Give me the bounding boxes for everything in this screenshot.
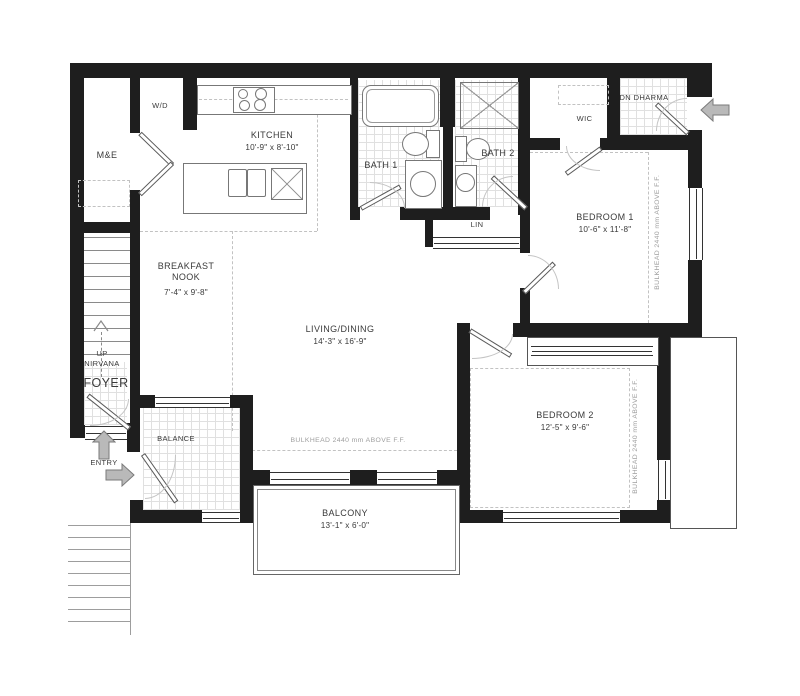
room-label-nook: BREAKFAST NOOK (145, 261, 227, 284)
terrace-bottom-window (202, 512, 240, 523)
bedroom2-bulkhead-outline (470, 368, 630, 508)
wall (443, 127, 453, 207)
room-label-bath1: BATH 1 (356, 160, 406, 171)
bedroom2-closet-slider (531, 346, 653, 356)
floor-plan: M&E W/D KITCHEN 10'-9" x 8'-10" BATH 1 B… (0, 0, 800, 696)
stair-up-chevron-icon (93, 320, 109, 332)
room-label-wic: WIC (562, 114, 607, 123)
balcony-sliding-door (270, 472, 350, 485)
burner-icon (239, 100, 250, 111)
bedroom1-window (689, 188, 703, 260)
bath1-sink (410, 171, 436, 197)
bulkhead-note-living: BULKHEAD 2440 mm ABOVE F.F. (288, 437, 408, 445)
burner-icon (254, 99, 266, 111)
entry-label: ENTRY (84, 458, 124, 467)
wall (70, 63, 712, 78)
wall (133, 395, 155, 408)
bath2-sink (456, 173, 475, 192)
wall (620, 510, 670, 523)
door-swing-arc (528, 255, 559, 289)
interior-stair-treads (84, 237, 130, 355)
room-label-bedroom1: BEDROOM 1 (555, 212, 655, 223)
burner-icon (238, 89, 248, 99)
bedroom2-window (503, 512, 620, 523)
wall (440, 78, 455, 127)
adjacent-terrace-outline (670, 337, 737, 529)
wall (350, 470, 377, 485)
wall (425, 215, 433, 247)
sink-bowl (247, 169, 266, 197)
wic-shelf (558, 85, 609, 105)
bulkhead-note-bedroom1: BULKHEAD 2440 mm ABOVE F.F. (654, 167, 662, 297)
wall (130, 510, 202, 523)
room-dims-balcony: 13'-1" x 6'-0" (295, 521, 395, 531)
living-bulkhead-line (242, 450, 457, 451)
wall (513, 323, 657, 337)
room-dims-bedroom2: 12'-5" x 9'-6" (510, 423, 620, 433)
wall (70, 425, 85, 438)
sink-bowl (228, 169, 247, 197)
room-dims-living: 14'-3" x 16'-9" (290, 337, 390, 347)
wall (687, 63, 712, 97)
exterior-stair-treads (68, 525, 130, 625)
wall (657, 323, 702, 337)
wall (183, 78, 197, 130)
room-dims-bedroom1: 10'-6" x 11'-8" (555, 225, 655, 235)
bedroom1-bulkhead-line (648, 152, 649, 323)
stair-up-name-label: NIRVANA (78, 359, 126, 368)
shower (460, 82, 519, 129)
room-label-bath2: BATH 2 (472, 148, 524, 159)
me-bifold-door (138, 161, 174, 196)
wall (70, 63, 84, 427)
stair-dn-label: DN DHARMA (616, 93, 672, 102)
bathtub (362, 85, 439, 127)
wall (607, 135, 702, 150)
room-label-me: M&E (84, 150, 130, 161)
linen-sliding-door (433, 237, 520, 249)
bulkhead-note-bedroom2: BULKHEAD 2440 mm ABOVE F.F. (632, 371, 640, 501)
exterior-stair-rail (130, 523, 131, 635)
room-dims-nook: 7'-4" x 9'-8" (145, 288, 227, 298)
room-dims-kitchen: 10'-9" x 8'-10" (222, 143, 322, 153)
wall (530, 138, 560, 150)
wall (520, 215, 530, 253)
dishwasher (271, 168, 303, 200)
room-label-foyer: FOYER (80, 376, 132, 392)
kitchen-nook-divider (140, 231, 317, 232)
wall (518, 78, 530, 215)
room-label-bedroom2: BEDROOM 2 (510, 410, 620, 421)
stair-up-label: UP (82, 349, 122, 358)
wall (240, 395, 253, 523)
wall (350, 207, 360, 220)
room-label-kitchen: KITCHEN (222, 130, 322, 141)
room-label-lin: LIN (452, 220, 502, 229)
room-label-living: LIVING/DINING (290, 324, 390, 335)
toilet-bowl (402, 132, 429, 156)
room-label-balance: BALANCE (148, 434, 204, 443)
upper-entry-arrow-left-icon (700, 98, 730, 122)
wall (70, 222, 140, 233)
terrace-top-window (155, 397, 230, 408)
living-window (377, 472, 437, 485)
entry-arrow-up-icon (92, 430, 116, 460)
room-label-wd: W/D (137, 101, 183, 110)
room-label-balcony: BALCONY (295, 508, 395, 519)
me-equipment (78, 180, 130, 207)
